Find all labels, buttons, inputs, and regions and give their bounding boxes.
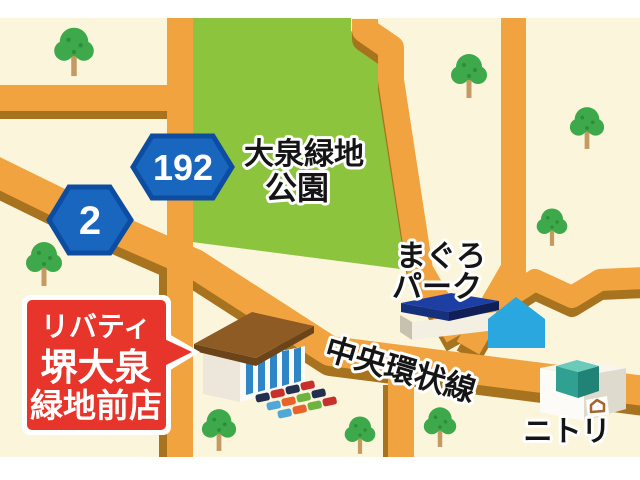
road-vertical-northeast [501,18,526,285]
nitori-label: ニトリ [523,416,610,448]
callout-line3: 緑地前店 [30,387,162,424]
park-label-line1: 大泉緑地 [244,137,364,171]
route-sign-2: 2 [49,187,131,253]
route-sign-192-number: 192 [153,147,213,188]
map-screenshot: 192 2 大泉緑地 公園 まぐろ パーク 中央環状線 ニトリ リバティ 堺大泉… [0,0,640,480]
route-sign-2-number: 2 [79,199,101,243]
callout-line1: リバティ [41,311,151,342]
location-map: 192 2 大泉緑地 公園 まぐろ パーク 中央環状線 ニトリ リバティ 堺大泉… [0,0,640,480]
road-top-west [0,85,193,111]
maguro-park-label-line1: まぐろ [396,240,486,273]
park-label-line2: 公園 [265,170,329,206]
road-shadow [0,110,178,119]
maguro-park-label-line2: パーク [392,271,482,304]
route-sign-192: 192 [133,136,232,198]
callout-line2: 堺大泉 [41,347,152,388]
